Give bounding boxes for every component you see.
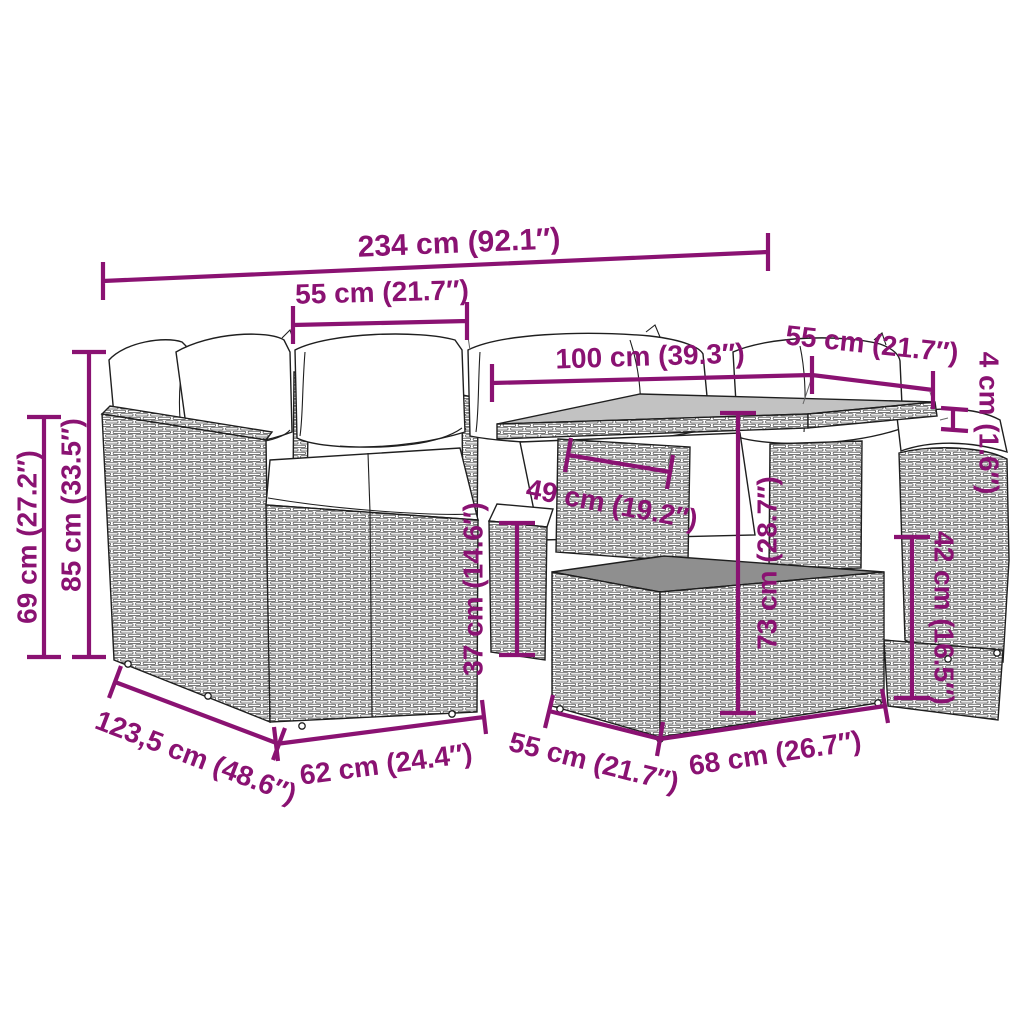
dim-backrest-height: 85 cm (33.5″) xyxy=(56,352,107,657)
foot xyxy=(125,661,131,667)
dim-overall-width-label: 234 cm (92.1″) xyxy=(357,222,561,263)
foot xyxy=(449,711,455,717)
dim-armrest-height: 69 cm (27.2″) xyxy=(12,417,62,657)
dim-tabletop-thickness-label: 4 cm (1.6″) xyxy=(974,352,1005,495)
dim-table-height-label: 73 cm (28.7″) xyxy=(752,476,783,650)
back-pillow xyxy=(295,334,465,447)
dim-footstool-height-label: 37 cm (14.6″) xyxy=(458,502,489,676)
dim-table-length-label: 100 cm (39.3″) xyxy=(555,338,745,375)
foot xyxy=(994,650,1000,656)
table-pedestal xyxy=(769,441,862,571)
dim-table-base-height-label: 42 cm (16.5″) xyxy=(929,531,960,705)
foot xyxy=(299,723,305,729)
table-base xyxy=(552,572,660,737)
dim-armrest-height-label: 69 cm (27.2″) xyxy=(12,450,43,624)
dim-seat-width: 55 cm (21.7″) xyxy=(293,274,469,344)
product-dimension-diagram: 234 cm (92.1″) 55 cm (21.7″) 100 cm (39.… xyxy=(0,0,1024,1024)
foot xyxy=(205,693,211,699)
dim-backrest-height-label: 85 cm (33.5″) xyxy=(56,418,87,592)
dim-seat-depth-label: 62 cm (24.4″) xyxy=(298,737,474,790)
diagram-canvas: 234 cm (92.1″) 55 cm (21.7″) 100 cm (39.… xyxy=(0,0,1024,1024)
dim-seat-width-label: 55 cm (21.7″) xyxy=(295,274,469,310)
furniture-drawing xyxy=(102,324,1009,742)
sofa-left-armrest xyxy=(102,414,270,722)
